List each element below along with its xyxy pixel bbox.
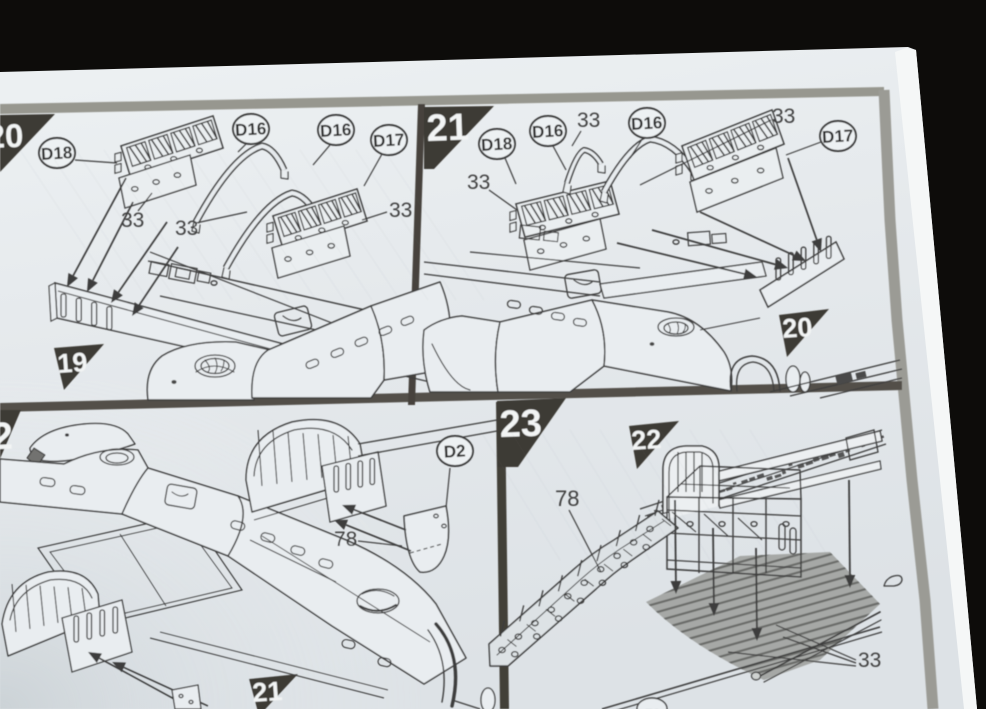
svg-text:19: 19 [56,347,88,379]
svg-text:22: 22 [630,424,662,456]
svg-text:33: 33 [121,209,144,232]
svg-text:20: 20 [0,117,24,155]
svg-text:D16: D16 [320,120,352,141]
svg-text:78: 78 [555,486,579,511]
svg-text:22: 22 [0,416,14,459]
svg-text:D17: D17 [822,126,854,147]
svg-text:33: 33 [577,109,600,132]
svg-text:D16: D16 [631,113,663,134]
svg-text:33: 33 [858,649,881,672]
svg-text:D17: D17 [373,130,405,151]
svg-text:D16: D16 [235,119,267,140]
svg-text:D18: D18 [41,143,73,164]
svg-text:D16: D16 [532,121,564,142]
svg-text:33: 33 [389,199,412,222]
svg-text:78: 78 [334,528,357,551]
svg-text:33: 33 [467,171,490,194]
svg-text:D2: D2 [443,441,466,461]
svg-text:33: 33 [772,105,795,128]
svg-text:23: 23 [499,403,543,446]
svg-text:21: 21 [251,676,283,708]
svg-text:D18: D18 [481,134,513,155]
svg-text:20: 20 [781,312,813,344]
svg-text:21: 21 [426,107,470,150]
